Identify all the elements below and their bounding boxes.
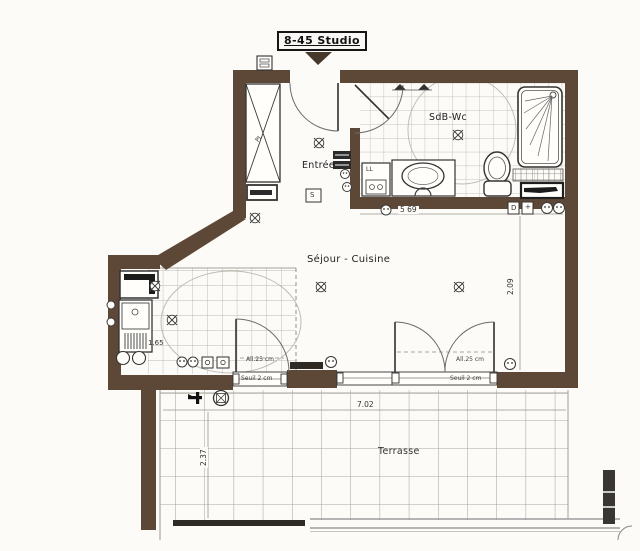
terrace-wall-stub [141,390,156,530]
washer-label: LL [366,167,373,173]
wall-outlet-right [505,359,516,370]
diagonal-wall [153,211,246,270]
outlet-entrance-a [341,170,350,179]
outlet-right-a [542,203,553,214]
dim-bathroom-width: 5 69 [398,206,419,214]
radiator [290,362,323,369]
outlet-entrance-b [343,183,352,192]
cooktop [117,352,146,365]
ceiling-light-bathroom [453,130,463,140]
shower [518,87,562,167]
switch-label: S [310,192,314,199]
outlet-kitchen-b [188,357,198,367]
fixed-window [337,372,392,385]
outlet-right-b [554,203,565,214]
dim-kitchen-width: 1.65 [146,340,166,347]
room-label-terrace: Terrasse [378,447,420,457]
entrance-door [290,83,338,131]
entrance-closet [246,84,280,182]
top-wall-right [340,70,578,83]
shower-mat-grid [513,169,563,181]
outlet-kitchen-wall-b [107,318,115,326]
dim-terrace-width: 7.02 [355,401,376,409]
ceiling-light-kitchen-a [150,281,160,291]
dim-living-depth: 2.09 [507,276,515,297]
ceiling-light-living-left [316,282,326,292]
left-wall-upper [233,70,246,218]
detector-label: D [511,205,516,212]
bottom-wall-mid [287,370,337,388]
dim-terrace-depth: 2.37 [200,447,208,468]
intercom [333,151,351,169]
sill-note-left: All.25 cm [246,357,274,363]
threshold-note-left: Seuil 2 cm [241,376,272,382]
right-wall [565,70,578,388]
toilet [484,152,511,196]
bathroom-shelf [521,183,563,198]
bathroom-sink [392,160,455,196]
sill-note-right: All.25 cm [456,357,484,363]
bottom-wall-left [108,375,233,390]
plan-title: 8-45 Studio [277,31,367,51]
terrace-floor-tiles [160,390,568,540]
outlet-kitchen-wall-a [107,301,115,309]
ceiling-light-living-right [454,282,464,292]
room-label-bathroom: SdB-Wc [429,113,467,123]
meter-box [257,56,272,70]
ceiling-light-hall [250,213,260,223]
entrance-bathroom-divider [350,128,360,209]
room-label-living-kitchen: Séjour - Cuisine [307,255,390,265]
thermostat-outlet [326,357,337,368]
terrace-separator [603,470,632,540]
ceiling-light-entrance [314,138,324,148]
entrance-arrow-icon [305,52,332,65]
room-label-entrance: Entrée [302,161,335,171]
plus-label: + [525,204,531,211]
outlet-dim-line [381,205,391,215]
outlet-kitchen-a [177,357,187,367]
terrace-drain [214,391,229,406]
threshold-note-right: Seuil 2 cm [450,376,481,382]
ceiling-light-kitchen-b [167,315,177,325]
floor-plan: 8-45 Studio Entrée SdB-Wc Séjour - Cuisi… [0,0,640,551]
plan-drawing [0,0,640,551]
shoe-cabinet [247,185,277,200]
terrace-railing [173,519,620,532]
